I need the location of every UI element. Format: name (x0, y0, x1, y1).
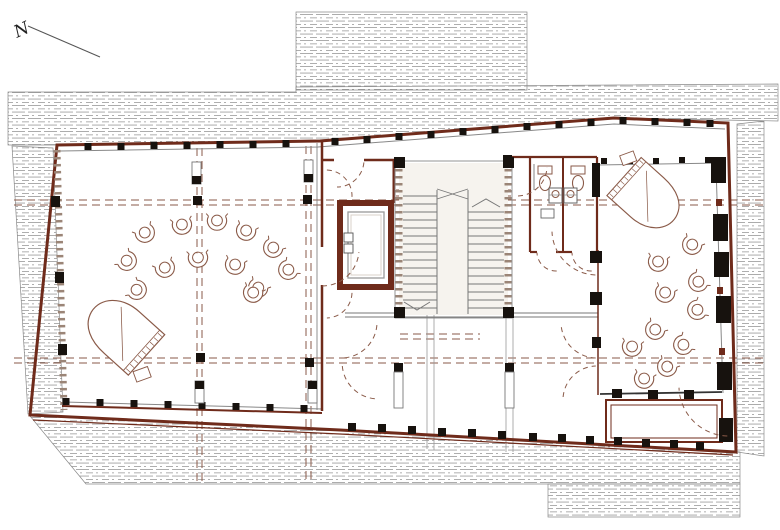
chair-back (172, 219, 193, 236)
stair-pier (394, 157, 405, 168)
chair (132, 221, 159, 246)
north-arrow: N (10, 18, 100, 57)
rightroom-bottom-pier (684, 390, 694, 399)
chair-back (207, 216, 226, 230)
top-wall-mullions (184, 142, 191, 149)
chair (152, 257, 179, 281)
door-swing-arc (327, 170, 352, 197)
hall-bottom-mullions (131, 400, 138, 407)
chair (274, 257, 301, 284)
rightroom-top-mullions (601, 158, 607, 164)
stair-pier (503, 307, 514, 318)
bottom-wall-mullions (696, 442, 704, 450)
chair (114, 248, 141, 275)
bottom-wall-mullions (558, 434, 566, 442)
floor-plan-page: N (0, 0, 780, 530)
door-swing-arc (342, 325, 377, 358)
corridor-pilaster (394, 372, 403, 408)
chair (170, 216, 194, 236)
chair (678, 233, 705, 258)
corridor-pilaster (505, 372, 514, 408)
hall-pilaster-cap (195, 381, 204, 389)
bottom-wall-mullions (378, 424, 386, 432)
chair-back (621, 341, 642, 358)
hall-chairs (114, 214, 300, 306)
top-wall-mullions (588, 119, 595, 126)
east-wall-pier (713, 214, 728, 241)
chair (652, 282, 678, 305)
top-wall-mullions (151, 142, 158, 149)
top-wall-mullions (283, 140, 290, 147)
wc-pier (590, 292, 602, 305)
top-wall-mullions (556, 121, 563, 128)
chair-back (275, 260, 298, 284)
chair-back (647, 256, 668, 273)
chair (684, 269, 711, 296)
top-wall-mullions (684, 119, 691, 126)
rightroom-top-mullions (653, 158, 659, 164)
top-wall-mullions (85, 143, 92, 150)
toilet-tank (538, 166, 552, 174)
hall-bottom-mullions (301, 405, 308, 412)
wc-pier (592, 337, 601, 348)
piano-bench (620, 151, 637, 166)
rightroom-bottom-pier (648, 390, 658, 399)
chair (206, 214, 228, 231)
chair (233, 220, 259, 243)
chair (669, 332, 695, 359)
rightroom-chairs (620, 233, 711, 391)
bottom-wall-mullions (468, 429, 476, 437)
grid-node (303, 195, 312, 204)
rightroom-bottom-pier (612, 389, 622, 398)
elevator-rail-b (344, 244, 353, 253)
top-wall-mullions (428, 131, 435, 138)
grid-node (193, 196, 202, 205)
top-wall-mullions (118, 143, 125, 150)
chair-back (234, 223, 257, 243)
chair-back (223, 258, 245, 277)
east-wall-pier (716, 296, 731, 323)
hall-pilaster-cap (308, 381, 317, 389)
top-wall-mullions (652, 118, 659, 125)
top-wall-mullions (460, 128, 467, 135)
hall-bottom-wall (62, 406, 322, 413)
plan-content (8, 12, 778, 517)
top-wall-mullions (217, 141, 224, 148)
hall-pilaster-cap (304, 174, 313, 182)
grid-node (196, 353, 205, 362)
bottom-wall-mullions (438, 428, 446, 436)
hall-bottom-mullions (267, 404, 274, 411)
chair (222, 255, 247, 277)
elevator-rail-a (344, 233, 353, 242)
top-wall-mullions (396, 133, 403, 140)
floor-plan-drawing: N (0, 0, 780, 530)
east-wall-pier (714, 252, 729, 277)
wall-pier (55, 272, 64, 283)
top-wall-mullions (707, 120, 714, 127)
top-wall-mullions (492, 126, 499, 133)
chair (684, 297, 709, 324)
north-arrow-line (28, 26, 100, 57)
bottom-wall-mullions (408, 426, 416, 434)
chair (646, 253, 670, 273)
east-wall-block (719, 348, 725, 355)
north-label: N (10, 18, 34, 43)
door-swing-arc (327, 293, 352, 318)
hatch-right-band (737, 121, 764, 456)
hatch-top-notch (296, 12, 527, 90)
chair (641, 318, 668, 344)
top-wall-mullions (620, 117, 627, 124)
east-wall-block (716, 199, 722, 206)
wc-pier (592, 163, 600, 197)
chair (631, 369, 656, 391)
door-swing-arc (537, 253, 557, 271)
piano-body (76, 288, 165, 375)
piano-bench (133, 366, 151, 382)
chair-back (117, 251, 140, 275)
chair-back (632, 372, 654, 391)
bottom-wall-mullions (670, 440, 678, 448)
door-swing-arc (563, 366, 596, 397)
chair (187, 250, 210, 268)
bottom-wall-mullions (586, 436, 594, 444)
bottom-wall-mullions (642, 439, 650, 447)
wall-pier (51, 196, 60, 207)
hall-bottom-mullions (165, 401, 172, 408)
grid-node (305, 358, 314, 367)
hall-pilaster-cap (192, 176, 201, 184)
hall-bottom-mullions (63, 398, 70, 405)
door-swing-arc (552, 232, 595, 275)
rightroom-top-mullions (679, 157, 685, 163)
door-swing-arc (337, 162, 364, 187)
chair (259, 236, 286, 262)
door-swing-arc (572, 253, 592, 271)
top-wall-mullions (524, 123, 531, 130)
east-wall-block (717, 287, 723, 294)
terrace-outer (606, 400, 722, 442)
hatch-bottom-step (548, 484, 740, 517)
east-wall-pier (717, 362, 732, 390)
toilet-tank (571, 166, 585, 174)
chair-back (188, 252, 208, 268)
stair-pier (394, 307, 405, 318)
chair-back (685, 272, 708, 296)
wc-cabinet (541, 209, 554, 218)
wall-pier (58, 344, 67, 355)
east-wall-pier (711, 157, 726, 183)
lobby-pier (503, 155, 512, 165)
piano-body (607, 157, 690, 239)
chair-back (653, 285, 676, 305)
chair (620, 338, 644, 358)
east-wall-pier (719, 418, 733, 442)
bottom-wall-mullions (614, 437, 622, 445)
wc-pier (590, 251, 602, 263)
top-wall-mullions (364, 136, 371, 143)
chair (653, 355, 680, 380)
rightroom-top-mullions (705, 157, 711, 163)
rightroom-top-glass-line (597, 163, 722, 165)
bottom-wall-mullions (348, 423, 356, 431)
grand-piano-right (594, 146, 690, 240)
hall-bottom-mullions (97, 399, 104, 406)
hall-bottom-mullions (233, 403, 240, 410)
chair (125, 277, 150, 304)
door-swing-arc (342, 366, 377, 399)
top-wall-mullions (332, 138, 339, 145)
bottom-wall-mullions (498, 431, 506, 439)
top-wall-mullions (250, 141, 257, 148)
door-swing-arc (561, 325, 596, 358)
bottom-wall-mullions (529, 433, 537, 441)
grand-piano-left (76, 288, 178, 388)
